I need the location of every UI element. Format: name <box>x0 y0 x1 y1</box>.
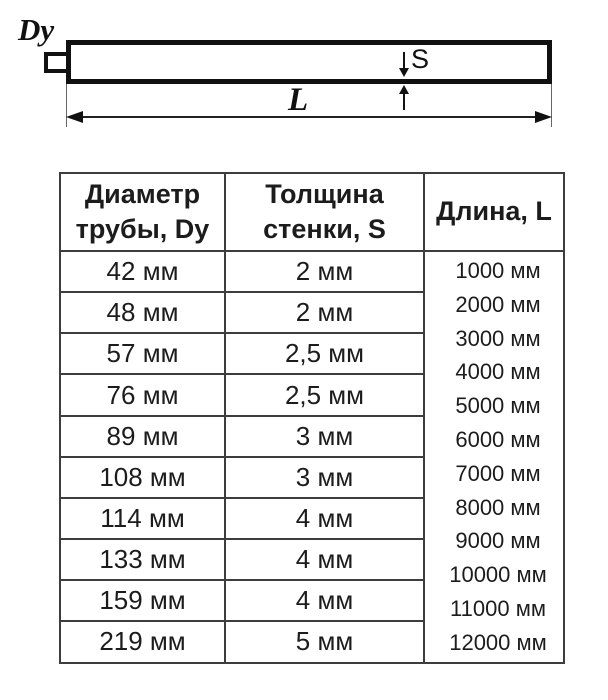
header-thickness-line2: стенки, S <box>263 214 386 244</box>
length-item: 5000 мм <box>433 389 563 423</box>
pipe-spec-sheet: Dy S L Диаметр трубы, Dy Толщина стенки, <box>0 0 608 700</box>
diameter-cell: 57 мм <box>60 333 225 374</box>
length-item: 2000 мм <box>433 288 563 322</box>
pipe-body-outline <box>66 40 552 84</box>
header-diameter-line2: трубы, Dy <box>76 214 210 244</box>
wall-thickness-arrow-up-line <box>403 93 405 110</box>
pipe-dimensions-table: Диаметр трубы, Dy Толщина стенки, S Длин… <box>59 172 565 664</box>
diameter-dy-label: Dy <box>18 12 54 48</box>
thickness-cell: 3 мм <box>225 416 424 457</box>
length-item: 10000 мм <box>433 558 563 592</box>
length-item: 6000 мм <box>433 423 563 457</box>
thickness-cell: 4 мм <box>225 498 424 539</box>
diameter-cell: 219 мм <box>60 621 225 662</box>
diameter-cell: 159 мм <box>60 580 225 621</box>
header-diameter-line1: Диаметр <box>85 179 200 209</box>
length-l-label: L <box>288 82 308 119</box>
thickness-cell: 2 мм <box>225 292 424 333</box>
header-thickness-line1: Толщина <box>265 179 383 209</box>
length-item: 8000 мм <box>433 491 563 525</box>
thickness-cell: 4 мм <box>225 580 424 621</box>
thickness-cell: 2,5 мм <box>225 374 424 415</box>
length-item: 4000 мм <box>433 355 563 389</box>
header-thickness: Толщина стенки, S <box>225 173 424 251</box>
table-row: 42 мм 2 мм 1000 мм 2000 мм 3000 мм 4000 … <box>60 251 564 292</box>
thickness-cell: 2,5 мм <box>225 333 424 374</box>
table-header-row: Диаметр трубы, Dy Толщина стенки, S Длин… <box>60 173 564 251</box>
length-list-cell: 1000 мм 2000 мм 3000 мм 4000 мм 5000 мм … <box>424 251 564 663</box>
diameter-cell: 114 мм <box>60 498 225 539</box>
length-item: 7000 мм <box>433 457 563 491</box>
length-arrowhead-right-icon <box>535 111 552 123</box>
diameter-cell: 89 мм <box>60 416 225 457</box>
thickness-cell: 2 мм <box>225 251 424 292</box>
pipe-diagram: Dy S L <box>0 0 608 150</box>
length-item: 9000 мм <box>433 524 563 558</box>
length-dimension-line <box>78 116 540 118</box>
length-item: 3000 мм <box>433 322 563 356</box>
wall-thickness-s-label: S <box>411 44 429 75</box>
length-item: 1000 мм <box>433 254 563 288</box>
header-diameter: Диаметр трубы, Dy <box>60 173 225 251</box>
diameter-cell: 133 мм <box>60 539 225 580</box>
diameter-cell: 108 мм <box>60 457 225 498</box>
thickness-cell: 3 мм <box>225 457 424 498</box>
header-length: Длина, L <box>424 173 564 251</box>
length-item: 12000 мм <box>433 626 563 660</box>
diameter-cell: 48 мм <box>60 292 225 333</box>
diameter-cell: 76 мм <box>60 374 225 415</box>
length-arrowhead-left-icon <box>66 111 83 123</box>
wall-thickness-arrow-down-icon <box>399 68 409 77</box>
diameter-cell: 42 мм <box>60 251 225 292</box>
length-item: 11000 мм <box>433 592 563 626</box>
thickness-cell: 5 мм <box>225 621 424 662</box>
thickness-cell: 4 мм <box>225 539 424 580</box>
